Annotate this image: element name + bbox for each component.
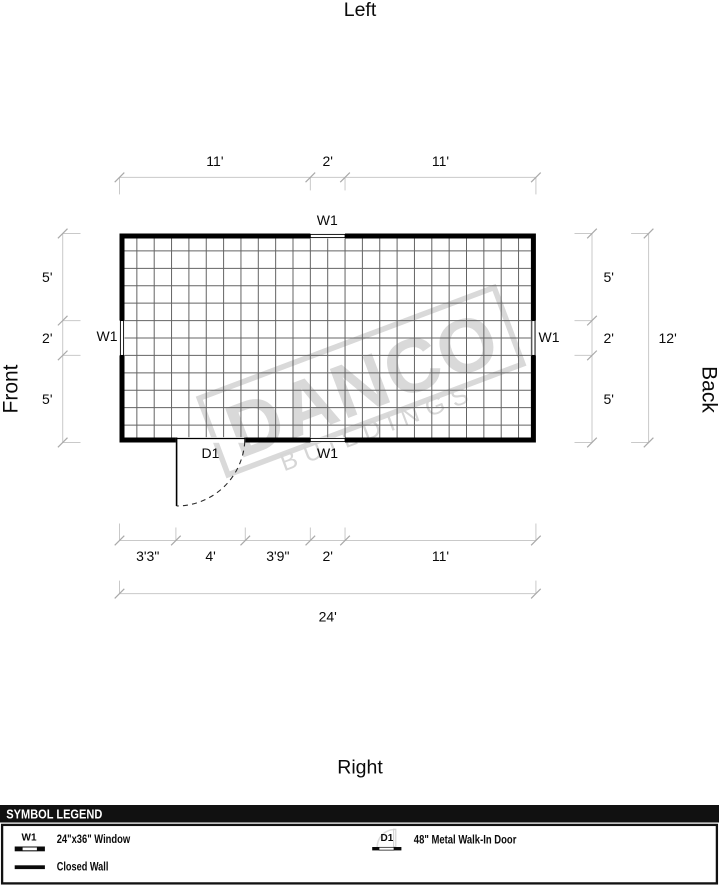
svg-text:3'3": 3'3" bbox=[136, 548, 159, 564]
svg-text:SYMBOL LEGEND: SYMBOL LEGEND bbox=[6, 807, 102, 822]
svg-text:W1: W1 bbox=[539, 329, 560, 345]
svg-text:Right: Right bbox=[337, 757, 383, 779]
svg-text:24': 24' bbox=[319, 609, 337, 625]
svg-text:D1: D1 bbox=[381, 833, 394, 844]
svg-text:5': 5' bbox=[604, 391, 614, 407]
svg-text:2': 2' bbox=[322, 153, 332, 169]
svg-text:2': 2' bbox=[42, 330, 52, 346]
svg-text:W1: W1 bbox=[317, 445, 338, 461]
svg-text:Closed Wall: Closed Wall bbox=[57, 860, 109, 874]
svg-text:11': 11' bbox=[206, 153, 223, 169]
svg-text:W1: W1 bbox=[22, 833, 37, 844]
svg-text:12': 12' bbox=[659, 330, 677, 346]
svg-text:5': 5' bbox=[42, 269, 52, 285]
svg-text:Front: Front bbox=[0, 364, 22, 413]
svg-text:Back: Back bbox=[698, 366, 719, 413]
svg-text:24"x36" Window: 24"x36" Window bbox=[57, 832, 131, 846]
svg-text:48" Metal Walk-In Door: 48" Metal Walk-In Door bbox=[414, 832, 517, 846]
svg-text:2': 2' bbox=[322, 548, 332, 564]
svg-text:3'9": 3'9" bbox=[266, 548, 289, 564]
svg-text:5': 5' bbox=[42, 391, 52, 407]
svg-text:2': 2' bbox=[604, 330, 614, 346]
svg-text:11': 11' bbox=[432, 548, 449, 564]
svg-text:5': 5' bbox=[604, 269, 614, 285]
svg-text:W1: W1 bbox=[317, 212, 338, 228]
svg-text:W1: W1 bbox=[97, 328, 118, 344]
svg-text:Left: Left bbox=[344, 0, 377, 21]
svg-text:4': 4' bbox=[205, 548, 215, 564]
svg-text:11': 11' bbox=[432, 153, 449, 169]
svg-text:D1: D1 bbox=[202, 445, 220, 461]
